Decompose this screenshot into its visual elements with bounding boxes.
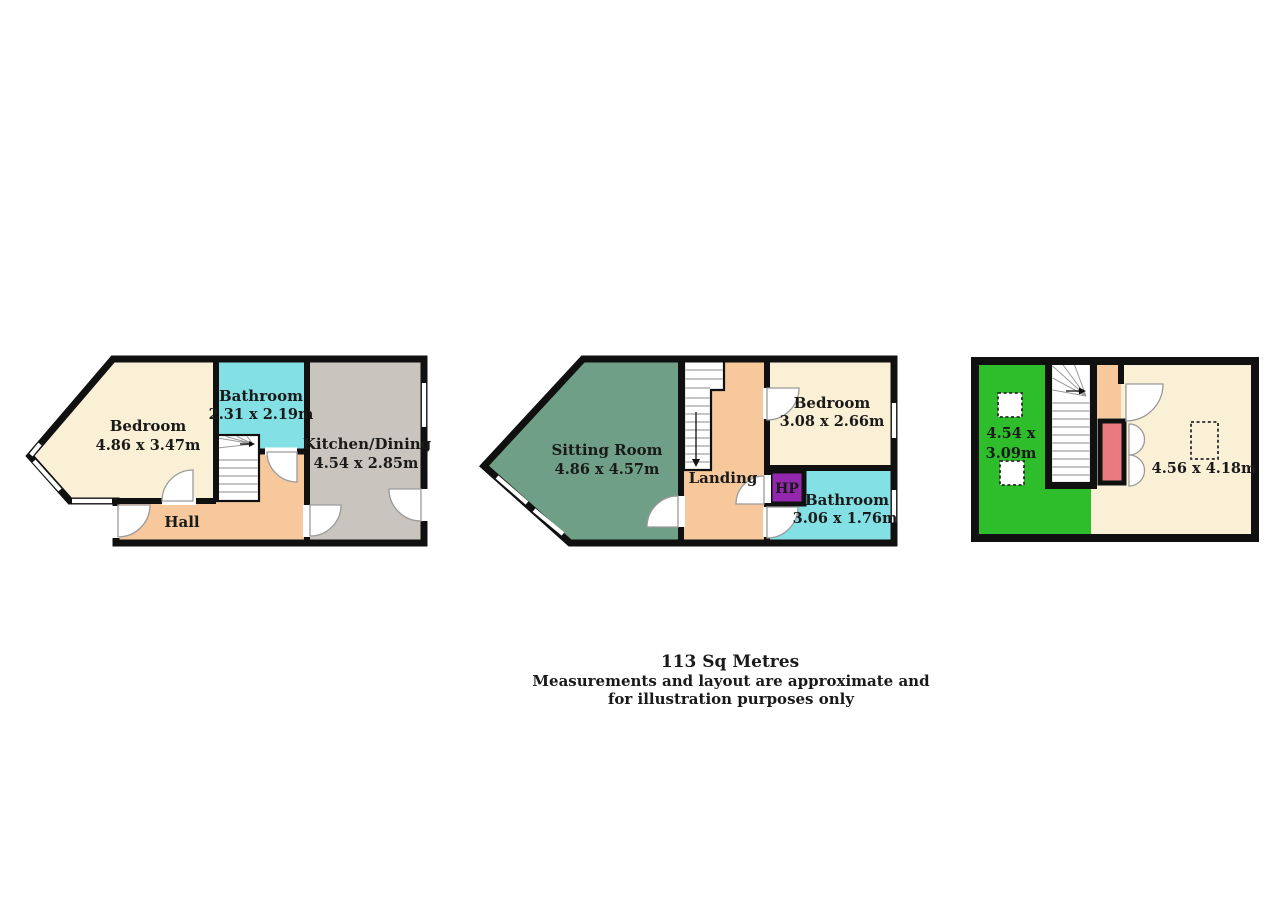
hall-label: Hall — [164, 513, 200, 531]
floorplan-drawing: Bedroom 4.86 x 3.47m Bathroom 2.31 x 2.1… — [0, 0, 1280, 905]
bathroom-first-dims: 3.06 x 1.76m — [793, 510, 898, 527]
bedroom-first-label: Bedroom — [794, 394, 871, 412]
floor-plan-ground: Bedroom 4.86 x 3.47m Bathroom 2.31 x 2.1… — [30, 359, 432, 543]
attic-right-dims: 4.56 x 4.18m — [1152, 460, 1257, 477]
staircase-attic — [1051, 362, 1091, 483]
attic-left-dims-line1: 4.54 x — [986, 425, 1035, 442]
floorplan-canvas: Bedroom 4.86 x 3.47m Bathroom 2.31 x 2.1… — [0, 0, 1280, 905]
footer: 113 Sq Metres Measurements and layout ar… — [532, 652, 930, 708]
floor-plan-first: Sitting Room 4.86 x 4.57m Landing Bedroo… — [484, 359, 898, 543]
staircase-ground — [216, 435, 259, 501]
attic-left-dims-line2: 3.09m — [986, 445, 1037, 462]
sitting-room-label: Sitting Room — [551, 441, 662, 459]
disclaimer-line2: for illustration purposes only — [608, 690, 855, 708]
floor-plan-attic: 4.54 x 3.09m 4.56 x 4.18m — [973, 359, 1257, 540]
bathroom-first-label: Bathroom — [805, 491, 889, 509]
chimney-block — [1100, 421, 1124, 483]
sitting-room-dims: 4.86 x 4.57m — [555, 461, 660, 478]
roof-window-2 — [1000, 461, 1024, 485]
bedroom-first-dims: 3.08 x 2.66m — [780, 413, 885, 430]
stair-top-landing — [1097, 362, 1121, 418]
landing-label: Landing — [689, 469, 758, 487]
kitchen-label: Kitchen/Dining — [303, 435, 432, 453]
bedroom-dims: 4.86 x 3.47m — [96, 437, 201, 454]
bathroom-dims: 2.31 x 2.19m — [209, 406, 314, 423]
roof-window-1 — [998, 393, 1022, 417]
total-area-text: 113 Sq Metres — [661, 652, 799, 672]
kitchen-dims: 4.54 x 2.85m — [314, 455, 419, 472]
bedroom-label: Bedroom — [110, 417, 187, 435]
hp-label: HP — [775, 481, 799, 497]
disclaimer-line1: Measurements and layout are approximate … — [532, 672, 930, 690]
bathroom-label: Bathroom — [219, 387, 303, 405]
